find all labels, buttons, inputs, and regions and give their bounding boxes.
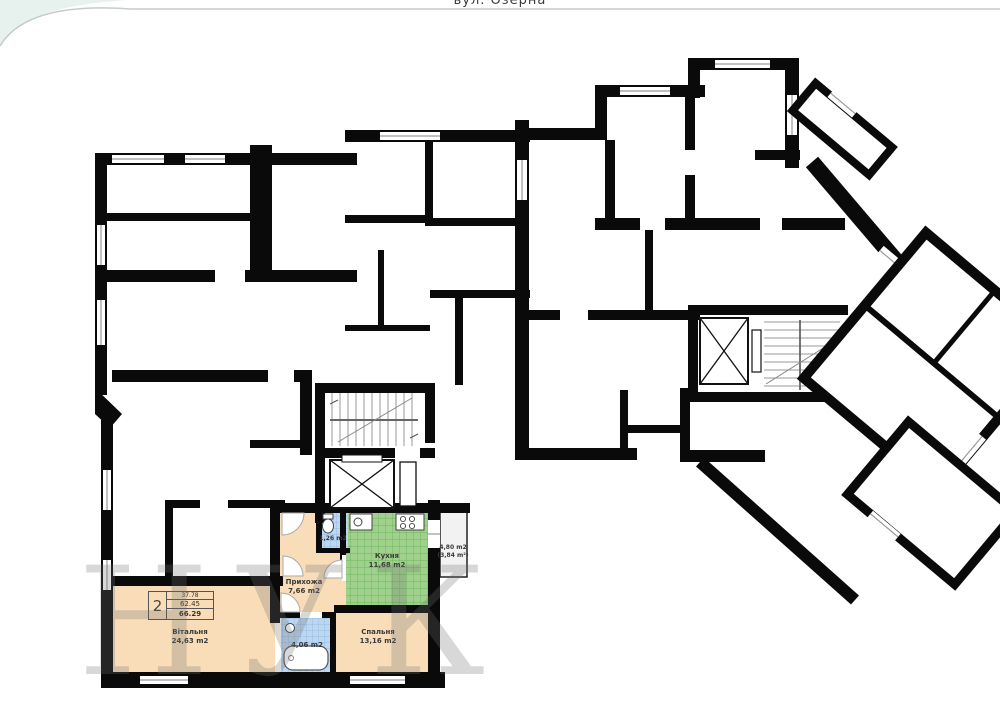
bedroom-label: Спальня13,16 m2	[330, 628, 426, 646]
street-label: вул. Озерна	[0, 0, 1000, 8]
kitchen-label: Кухня11,68 m2	[350, 552, 424, 570]
living-area-value: 37.78	[167, 592, 213, 600]
bathroom-label: 4,06 m2	[287, 641, 327, 650]
balcony-label: 4,80 m2(3,84 m²)	[430, 544, 476, 560]
wc-label: 1,26 m2	[317, 535, 349, 543]
floorplan-page: вул. Озерна Прихожа7,66 m2 Кухня11,68 m2…	[0, 0, 1000, 706]
toilet-icon	[323, 514, 334, 533]
elevator-left-icon	[330, 455, 416, 508]
stove-icon	[396, 514, 424, 530]
area-stamp: 2 37.78 62.45 66.29	[148, 591, 214, 620]
total-area-value: 66.29	[167, 609, 213, 619]
rooms-count: 2	[148, 591, 167, 620]
living-label: Вітальня24,63 m2	[140, 628, 240, 646]
kitchen-sink-icon	[350, 514, 372, 530]
bath-sink-icon	[286, 624, 295, 633]
hall-label: Прихожа7,66 m2	[281, 578, 327, 596]
elevator-right-icon	[700, 318, 761, 384]
staircase-left-icon	[330, 393, 418, 446]
balcony-room	[440, 505, 467, 577]
apartment-area-value: 62.45	[167, 600, 213, 609]
